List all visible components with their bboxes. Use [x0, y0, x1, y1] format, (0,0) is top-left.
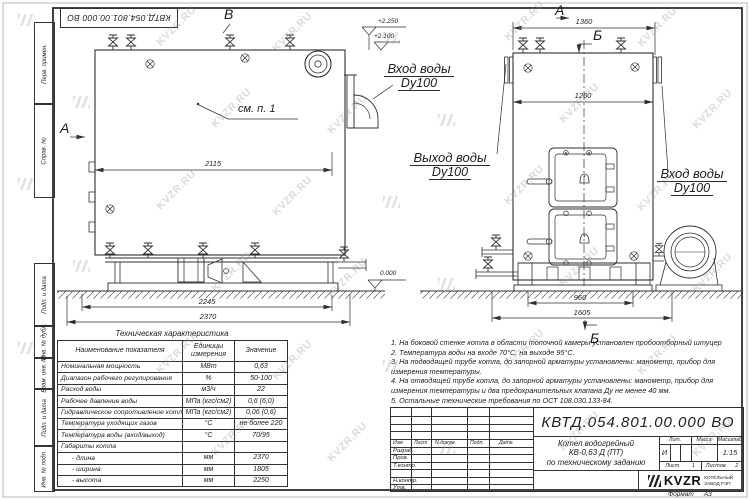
note-line: 3. На подводящей трубе котла, до запорно…: [391, 357, 747, 367]
table-cell: 2250: [235, 475, 288, 486]
sheet-label: Лист: [665, 463, 679, 469]
margin-label: Перв. примен.: [42, 44, 48, 84]
note-line: 5. Остальные технические требования по О…: [391, 396, 747, 406]
table-row: Температура воды (вход/выход)°С70/95: [58, 430, 288, 441]
table-cell: - высота: [58, 475, 183, 486]
table-row: Рабочее давление водыМПа (кгс/см2)0,6 (6…: [58, 396, 288, 407]
blower-fan: [653, 226, 722, 291]
tech-table-header: Наименование показателя: [58, 341, 183, 362]
table-cell: 1805: [235, 464, 288, 475]
scale-header: Масштаб: [717, 436, 743, 444]
margin-box-vzam-inv: Взам. инв. №: [34, 357, 55, 390]
table-cell: мм: [183, 464, 235, 475]
table-cell: 70/95: [235, 430, 288, 441]
margin-box-perv-primen: Перв. примен.: [34, 22, 55, 105]
table-row: Температура уходящих газов°Сне более 220: [58, 418, 288, 429]
table-cell: - длина: [58, 453, 183, 464]
margin-box-sprav: Справ. №: [34, 103, 55, 198]
table-cell: Рабочее давление воды: [58, 396, 183, 407]
table-cell: 0,06 (0,6): [235, 407, 288, 418]
table-row: Габариты котла: [58, 441, 288, 452]
table-cell: Температура воды (вход/выход): [58, 430, 183, 441]
boiler-side-view: [89, 35, 378, 291]
company-name: КОТЕЛЬНЫЙ ЗАВОД РЭП: [704, 475, 733, 485]
table-row: Расход водым3/ч22: [58, 384, 288, 395]
table-row: - длинамм2370: [58, 453, 288, 464]
table-row: Гидравлическое сопротивление котлаМПа (к…: [58, 407, 288, 418]
table-cell: Температура уходящих газов: [58, 418, 183, 429]
table-cell: мм: [183, 475, 235, 486]
table-row: - ширинамм1805: [58, 464, 288, 475]
change-col-list: Лист: [414, 440, 427, 446]
table-cell: мм: [183, 453, 235, 464]
document-number: КВТД.054.801.00.000 ВО: [533, 408, 743, 436]
table-cell: не более 220: [235, 418, 288, 429]
boiler-front-view: [476, 38, 722, 291]
table-cell: [183, 441, 235, 452]
margin-label: Справ. №: [42, 137, 48, 164]
format-label: Формат: [668, 491, 694, 498]
table-cell: Номинальная мощность: [58, 362, 183, 373]
note-line: 4. На отводящей трубе котла, до запорной…: [391, 376, 747, 386]
table-cell: Габариты котла: [58, 441, 183, 452]
margin-box-podp-data-1: Подп. и дата: [34, 263, 55, 327]
table-cell: - ширина: [58, 464, 183, 475]
title-block: Изм Лист N докум. Подп. Дата Разраб. Про…: [390, 407, 744, 492]
scale-value: 1:15: [717, 444, 743, 461]
format-note: ФорматА3: [668, 491, 722, 498]
sign-row-tkontr: Т.контр.: [393, 463, 416, 469]
margin-label: Взам. инв. №: [42, 355, 48, 392]
sheets-label: Листов: [706, 463, 726, 469]
sign-row-prov: Пров.: [393, 455, 408, 461]
table-cell: °С: [183, 418, 235, 429]
mass-header: Масса: [691, 436, 717, 444]
company-name-line: ЗАВОД РЭП: [704, 481, 733, 486]
table-cell: МПа (кгс/см2): [183, 396, 235, 407]
table-cell: МПа (кгс/см2): [183, 407, 235, 418]
technical-notes: 1. На боковой стенке котла в области топ…: [391, 338, 747, 405]
margin-label: Подп. и дата: [42, 276, 48, 314]
sign-row-nkontr: Н.контр.: [393, 478, 418, 484]
table-cell: 0,63: [235, 362, 288, 373]
change-col-data: Дата: [499, 440, 513, 446]
sign-row-razrab: Разраб.: [393, 448, 414, 454]
sheets-cell: Листов 2: [701, 461, 743, 470]
product-line: КВ-0,63 Д (ПТ): [569, 448, 623, 458]
company-cell: KVZR КОТЕЛЬНЫЙ ЗАВОД РЭП: [638, 470, 743, 491]
sign-row-utv: Утв.: [393, 485, 406, 491]
product-name: Котел водогрейный КВ-0,63 Д (ПТ) по техн…: [533, 436, 659, 470]
note-line: 1. На боковой стенке котла в области топ…: [391, 338, 747, 348]
lit-header: Лит.: [659, 436, 691, 444]
lit-value: И: [659, 444, 670, 461]
note-line: измерения температуры и два предохраните…: [391, 386, 747, 396]
table-cell: МВт: [183, 362, 235, 373]
drawing-sheet: А В А Б Б см. п. 1 2115 2245 2370 1360 1…: [0, 0, 750, 500]
margin-label: Подп. и дата: [42, 399, 48, 437]
table-row: Диапазон рабочего регулирования%50-100: [58, 373, 288, 384]
change-col-podp: Подп.: [470, 440, 484, 446]
company-name-line: КОТЕЛЬНЫЙ: [704, 475, 733, 480]
margin-box-inv-dubl: Инв. № дубл.: [34, 325, 55, 359]
table-cell: м3/ч: [183, 384, 235, 395]
table-cell: [235, 441, 288, 452]
table-cell: 50-100: [235, 373, 288, 384]
tech-table-title: Техническая характеристика: [57, 329, 287, 338]
furnace-doors: [527, 148, 617, 265]
corner-stamp: КВТД.054.801.00.000 ВО: [60, 8, 178, 28]
tech-table-header: Значение: [235, 341, 288, 362]
margin-box-podp-data-2: Подп. и дата: [34, 388, 55, 447]
table-row: - высотамм2250: [58, 475, 288, 486]
table-cell: Диапазон рабочего регулирования: [58, 373, 183, 384]
ground-hatch: [57, 291, 741, 299]
format-value: А3: [704, 491, 712, 498]
table-row: Номинальная мощностьМВт0,63: [58, 362, 288, 373]
product-line: Котел водогрейный: [558, 439, 634, 449]
table-cell: 22: [235, 384, 288, 395]
tech-table-header: Единицы измерения: [183, 341, 235, 362]
table-cell: °С: [183, 430, 235, 441]
kvzr-logo-icon: [648, 475, 661, 487]
note-line: измерения температуры.: [391, 367, 747, 377]
table-cell: Расход воды: [58, 384, 183, 395]
product-line: по техническому заданию: [547, 458, 646, 468]
corner-stamp-text: КВТД.054.801.00.000 ВО: [67, 13, 171, 23]
kvzr-logo-text: KVZR: [664, 473, 701, 488]
table-cell: %: [183, 373, 235, 384]
tech-table: Наименование показателя Единицы измерени…: [57, 340, 288, 487]
table-cell: 2370: [235, 453, 288, 464]
sheet-cell: Лист 1: [659, 461, 701, 470]
sheets-value: 2: [735, 463, 738, 469]
margin-box-inv-podl: Инв. № подл.: [34, 445, 55, 492]
sheet-value: 1: [692, 463, 695, 469]
change-col-izm: Изм: [393, 440, 403, 446]
margin-label: Инв. № подл.: [42, 450, 48, 487]
table-cell: Гидравлическое сопротивление котла: [58, 407, 183, 418]
note-line: 2. Температура воды на входе 70°С, на вы…: [391, 348, 747, 358]
change-col-dokum: N докум.: [435, 440, 456, 446]
table-cell: 0,6 (6,0): [235, 396, 288, 407]
